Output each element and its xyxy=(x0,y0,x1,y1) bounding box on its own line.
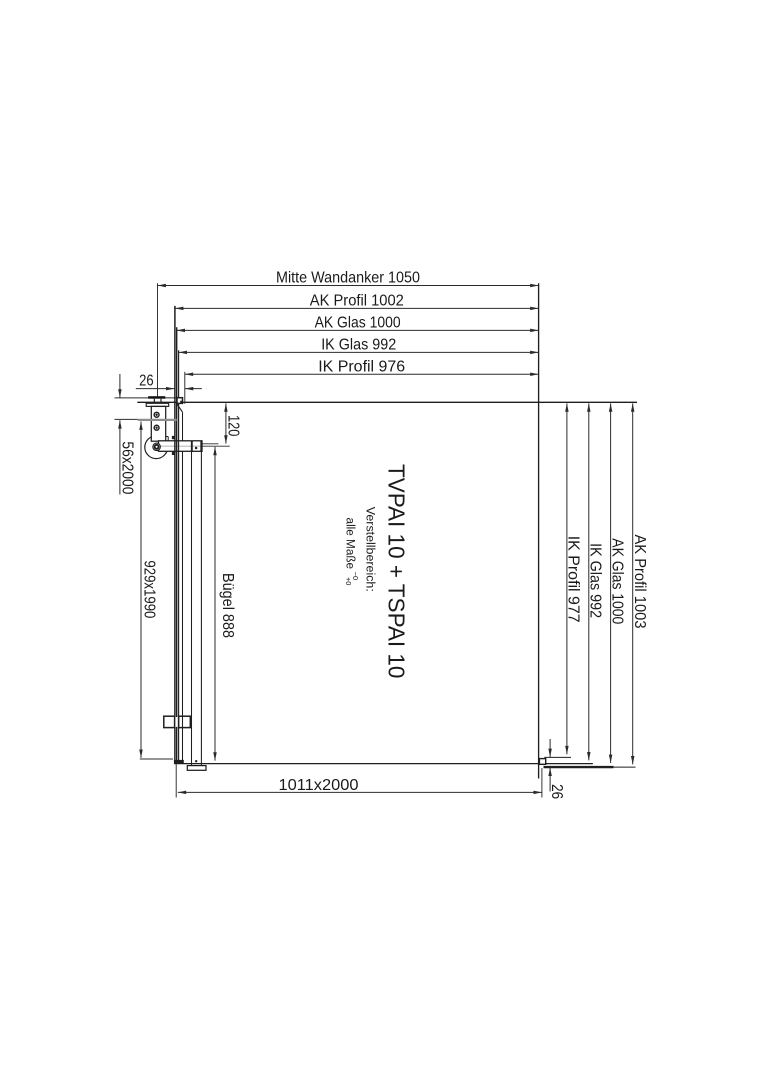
svg-text:120: 120 xyxy=(225,415,242,437)
svg-text:56x2000: 56x2000 xyxy=(119,441,136,494)
svg-text:AK Profil 1003: AK Profil 1003 xyxy=(631,535,648,629)
svg-text:1011x2000: 1011x2000 xyxy=(279,777,359,794)
svg-text:Mitte Wandanker 1050: Mitte Wandanker 1050 xyxy=(276,270,420,287)
svg-text:AK Profil 1002: AK Profil 1002 xyxy=(310,293,404,310)
svg-text:Verstellbereich:: Verstellbereich: xyxy=(363,507,375,592)
svg-text:alle Maße: alle Maße xyxy=(343,518,355,570)
svg-text:TVPAI 10 + TSPAI 10: TVPAI 10 + TSPAI 10 xyxy=(384,464,410,679)
svg-text:26: 26 xyxy=(139,372,154,389)
svg-text:929x1990: 929x1990 xyxy=(141,560,158,618)
svg-text:AK Glas 1000: AK Glas 1000 xyxy=(609,538,626,624)
svg-text:IK Profil 977: IK Profil 977 xyxy=(565,536,582,623)
svg-text:IK Glas 992: IK Glas 992 xyxy=(587,543,604,618)
svg-text:AK Glas 1000: AK Glas 1000 xyxy=(315,315,401,332)
svg-text:IK Glas 992: IK Glas 992 xyxy=(321,337,396,354)
svg-text:Bügel 888: Bügel 888 xyxy=(219,573,236,638)
svg-text:26: 26 xyxy=(548,784,565,799)
svg-text:+0: +0 xyxy=(344,577,353,586)
svg-text:IK Profil 976: IK Profil 976 xyxy=(318,358,405,375)
